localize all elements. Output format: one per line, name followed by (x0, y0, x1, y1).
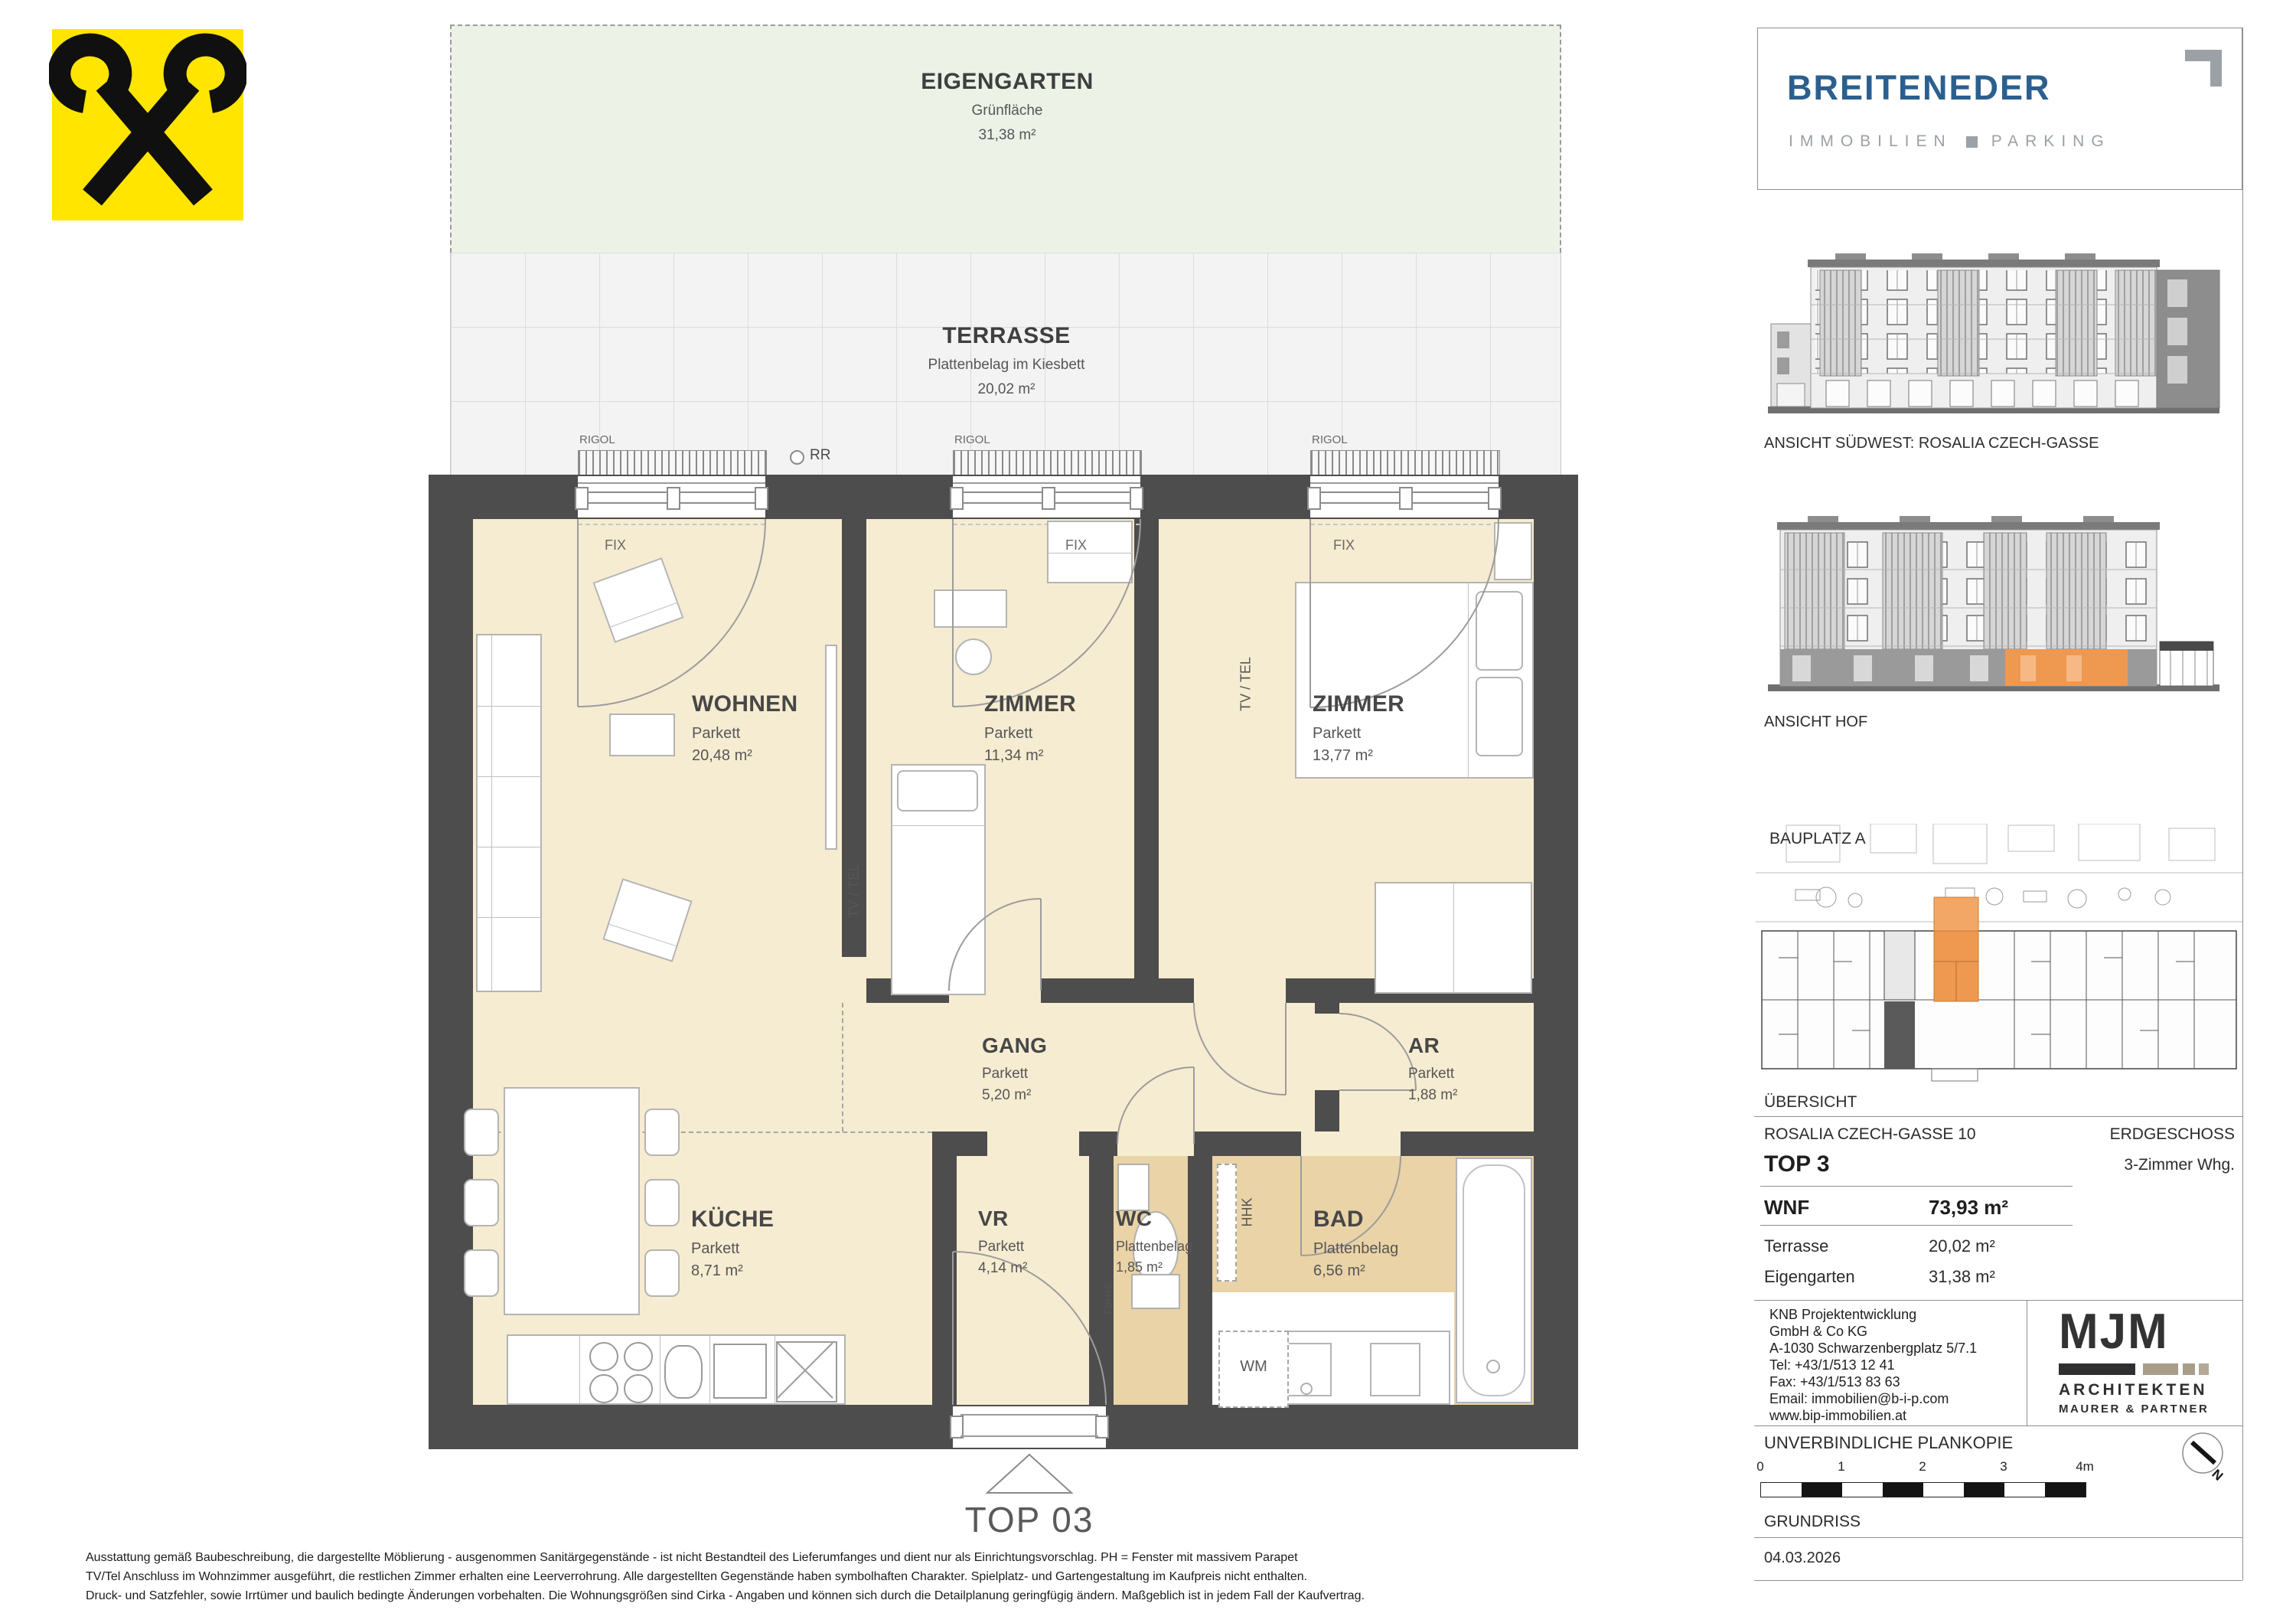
wnf-label: WNF (1764, 1196, 1809, 1220)
brand-tagline: IMMOBILIEN PARKING (1789, 132, 2111, 151)
brand-box: BREITENEDER IMMOBILIEN PARKING (1757, 28, 2242, 190)
terrace-row-value: 20,02 m² (1929, 1236, 1995, 1256)
titleblock-border (2242, 28, 2243, 1580)
window-grate (953, 450, 1142, 476)
siteplan-title: BAUPLATZ A (1769, 830, 1866, 848)
developer-line: Fax: +43/1/513 83 63 (1769, 1373, 1977, 1390)
garden-title: EIGENGARTEN (854, 69, 1160, 95)
divider (1754, 1580, 2242, 1581)
room-label-wohnen: WOHNEN Parkett 20,48 m² (692, 693, 797, 763)
hhk-label: HHK (1240, 1182, 1256, 1243)
garden-surface: Grünfläche (854, 103, 1160, 119)
wnf-value: 73,93 m² (1929, 1196, 2008, 1220)
siteplan-drawing (1756, 824, 2242, 1110)
architect-line2: MAURER & PARTNER (2059, 1403, 2235, 1416)
terrace-area-value: 20,02 m² (853, 381, 1159, 398)
unit-label: TOP 3 (1764, 1151, 1830, 1177)
rr-drain-icon (790, 450, 804, 465)
brand-tagline-right: PARKING (1991, 132, 2111, 151)
elevation-suedwest-drawing (1762, 226, 2226, 429)
room-label-wc: WC Plattenbelag 1,85 m² (1116, 1208, 1192, 1274)
elevation-hof-caption: ANSICHT HOF (1764, 714, 1867, 731)
fix-label: FIX (605, 537, 626, 554)
plan-date: 04.03.2026 (1764, 1550, 1841, 1567)
fix-label: FIX (1065, 537, 1087, 554)
footer-line-1: Ausstattung gemäß Baubeschreibung, die d… (86, 1548, 1365, 1567)
architect-logo-text: MJM (2059, 1303, 2235, 1360)
siteplan-caption: ÜBERSICHT (1764, 1093, 1864, 1112)
brand-name: BREITENEDER (1787, 68, 2051, 108)
terrace-row-label: Terrasse (1764, 1236, 1828, 1256)
fbhe-label: FBH+E (1103, 1268, 1114, 1329)
scale-tick-0: 0 (1756, 1459, 1763, 1474)
architect-logo: MJM ARCHITEKTEN MAURER & PARTNER (2059, 1303, 2235, 1416)
room-label-gang: GANG Parkett 5,20 m² (982, 1035, 1047, 1102)
footer-line-2: TV/Tel Anschluss im Wohnzimmer ausgeführ… (86, 1567, 1365, 1586)
divider (2027, 1300, 2027, 1425)
divider (1754, 1537, 2242, 1538)
divider (1754, 1425, 2242, 1426)
fix-label: FIX (1333, 537, 1355, 554)
scale-tick-4: 4m (2076, 1459, 2094, 1474)
rr-label: RR (810, 447, 830, 464)
entrance-label: TOP 03 (915, 1499, 1144, 1540)
garden-label: EIGENGARTEN Grünfläche 31,38 m² (854, 69, 1160, 144)
architect-line1: ARCHITEKTEN (2059, 1381, 2235, 1399)
developer-line: www.bip-immobilien.at (1769, 1407, 1977, 1424)
rigol-label: RIGOL (1312, 433, 1348, 446)
brand-separator-icon (1966, 136, 1978, 148)
address-label: ROSALIA CZECH-GASSE 10 (1764, 1125, 1976, 1144)
window-grate (1310, 450, 1500, 476)
elevation-hof-drawing (1762, 499, 2226, 707)
brand-corner-icon (2185, 50, 2222, 87)
raiffeisen-gable-cross-icon (49, 29, 246, 220)
scale-tick-1: 1 (1838, 1459, 1844, 1474)
room-label-zimmer-1: ZIMMER Parkett 11,34 m² (984, 693, 1076, 763)
terrace-label: TERRASSE Plattenbelag im Kiesbett 20,02 … (853, 323, 1159, 398)
developer-line: Email: immobilien@b-i-p.com (1769, 1390, 1977, 1407)
room-label-kueche: KÜCHE Parkett 8,71 m² (691, 1208, 774, 1278)
scale-tick-3: 3 (2000, 1459, 2007, 1474)
rigol-label: RIGOL (579, 433, 615, 446)
rigol-label: RIGOL (954, 433, 990, 446)
garden-row-value: 31,38 m² (1929, 1267, 1995, 1287)
window-grate (578, 450, 767, 476)
room-label-ar: AR Parkett 1,88 m² (1408, 1035, 1457, 1102)
divider (1760, 1186, 2073, 1187)
room-label-zimmer-2: ZIMMER Parkett 13,77 m² (1313, 693, 1404, 763)
terrace-area: TERRASSE Plattenbelag im Kiesbett 20,02 … (450, 253, 1561, 475)
level-label: ERDGESCHOSS (2110, 1125, 2235, 1144)
developer-block: KNB Projektentwicklung GmbH & Co KG A-10… (1769, 1306, 1977, 1424)
garden-row-label: Eigengarten (1764, 1267, 1855, 1287)
tv-tel-label: TV / TEL (1238, 646, 1254, 723)
drawing-label: GRUNDRISS (1764, 1513, 1861, 1531)
terrace-title: TERRASSE (853, 323, 1159, 349)
unit-type-label: 3-Zimmer Whg. (2124, 1156, 2235, 1174)
elevation-suedwest-caption: ANSICHT SÜDWEST: ROSALIA CZECH-GASSE (1764, 435, 2099, 452)
divider (1760, 1225, 2073, 1226)
garden-area: EIGENGARTEN Grünfläche 31,38 m² (450, 24, 1561, 253)
developer-line: A-1030 Schwarzenbergplatz 5/7.1 (1769, 1340, 1977, 1357)
tv-tel-label: TV / TEL (846, 853, 863, 929)
north-arrow-icon: N (2174, 1427, 2236, 1490)
brand-tagline-left: IMMOBILIEN (1789, 132, 1952, 151)
developer-line: KNB Projektentwicklung (1769, 1306, 1977, 1323)
scale-bar (1760, 1482, 2086, 1497)
door-swing-overlay (429, 475, 1578, 1577)
plan-sheet: EIGENGARTEN Grünfläche 31,38 m² TERRASSE… (0, 0, 2296, 1623)
architect-logo-bar-icon (2059, 1363, 2235, 1375)
room-label-vr: VR Parkett 4,14 m² (978, 1208, 1027, 1275)
north-label: N (2209, 1466, 2226, 1483)
divider (1754, 1300, 2242, 1301)
footer-line-3: Druck- und Satzfehler, sowie Irrtümer un… (86, 1586, 1365, 1605)
footer-disclaimer: Ausstattung gemäß Baubeschreibung, die d… (86, 1548, 1365, 1605)
room-label-bad: BAD Plattenbelag 6,56 m² (1313, 1208, 1398, 1278)
garden-area-value: 31,38 m² (854, 127, 1160, 144)
terrace-surface: Plattenbelag im Kiesbett (853, 357, 1159, 374)
scale-tick-2: 2 (1919, 1459, 1926, 1474)
raiffeisen-logo (49, 29, 246, 220)
developer-line: GmbH & Co KG (1769, 1323, 1977, 1340)
plan-note: UNVERBINDLICHE PLANKOPIE (1764, 1433, 2013, 1453)
divider (1754, 1116, 2242, 1117)
developer-line: Tel: +43/1/513 12 41 (1769, 1357, 1977, 1373)
